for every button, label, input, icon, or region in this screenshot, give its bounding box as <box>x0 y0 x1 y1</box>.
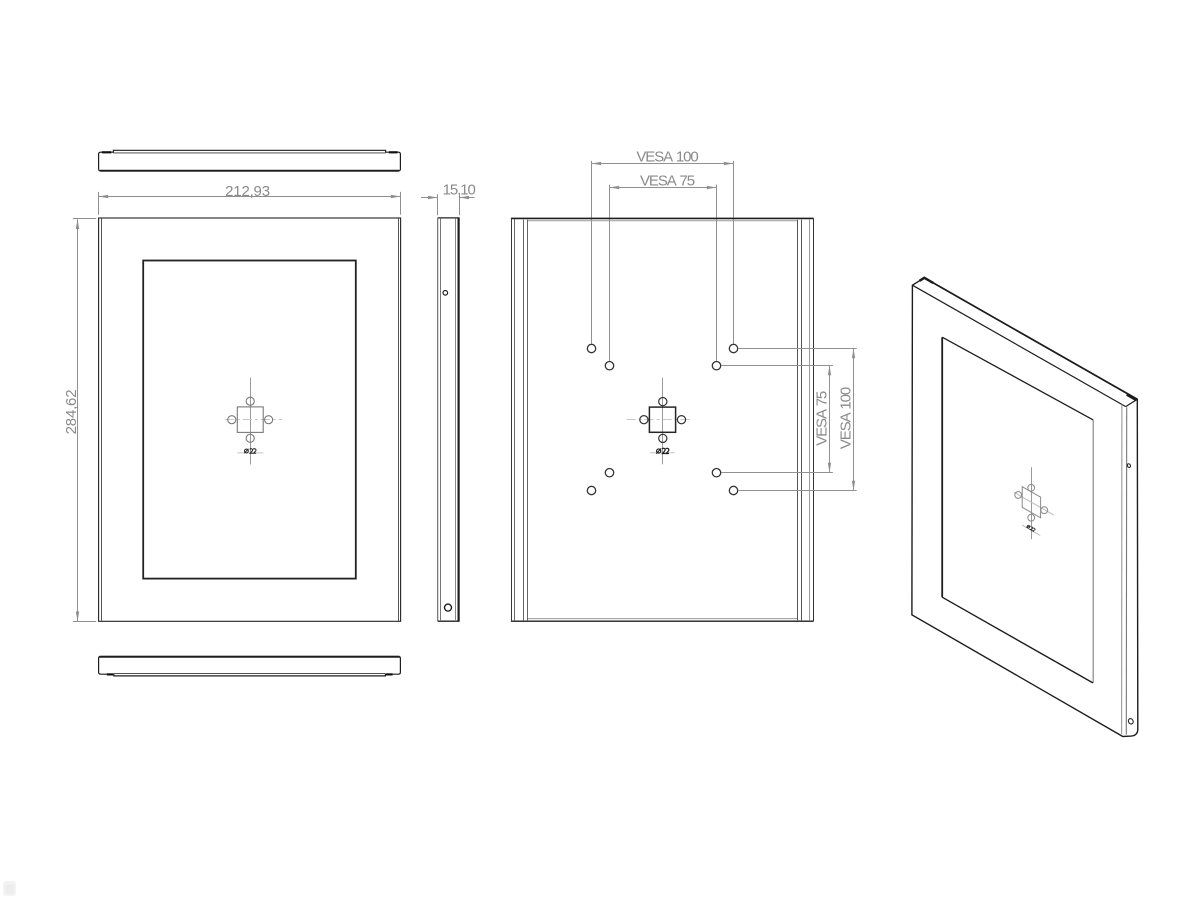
svg-text:VESA 100: VESA 100 <box>838 387 855 449</box>
svg-text:VESA 75: VESA 75 <box>640 173 695 190</box>
svg-text:VESA 100: VESA 100 <box>636 149 698 166</box>
svg-text:212,93: 212,93 <box>225 183 270 200</box>
svg-text:VESA 75: VESA 75 <box>814 391 831 446</box>
svg-text:284,62: 284,62 <box>63 390 80 435</box>
svg-text:15,10: 15,10 <box>443 182 476 199</box>
